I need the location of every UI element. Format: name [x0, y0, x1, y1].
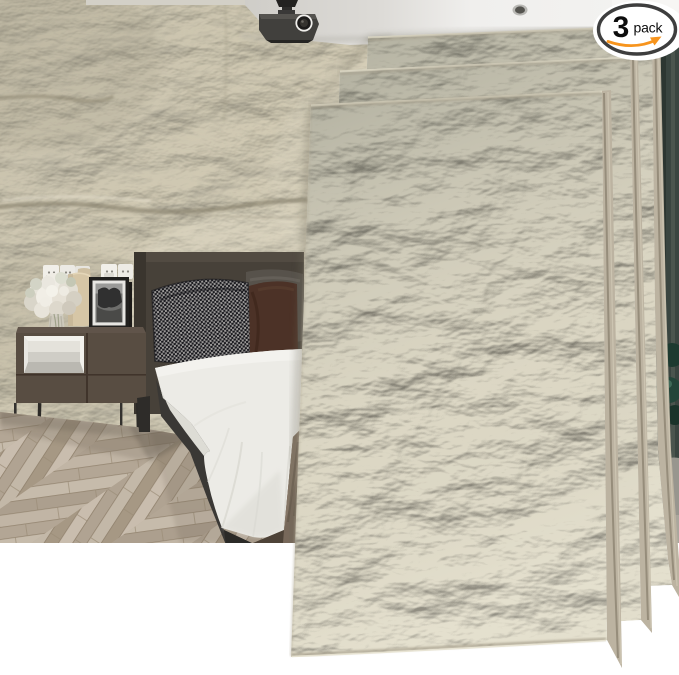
svg-text:3: 3: [613, 11, 630, 44]
svg-text:pack: pack: [634, 20, 664, 36]
